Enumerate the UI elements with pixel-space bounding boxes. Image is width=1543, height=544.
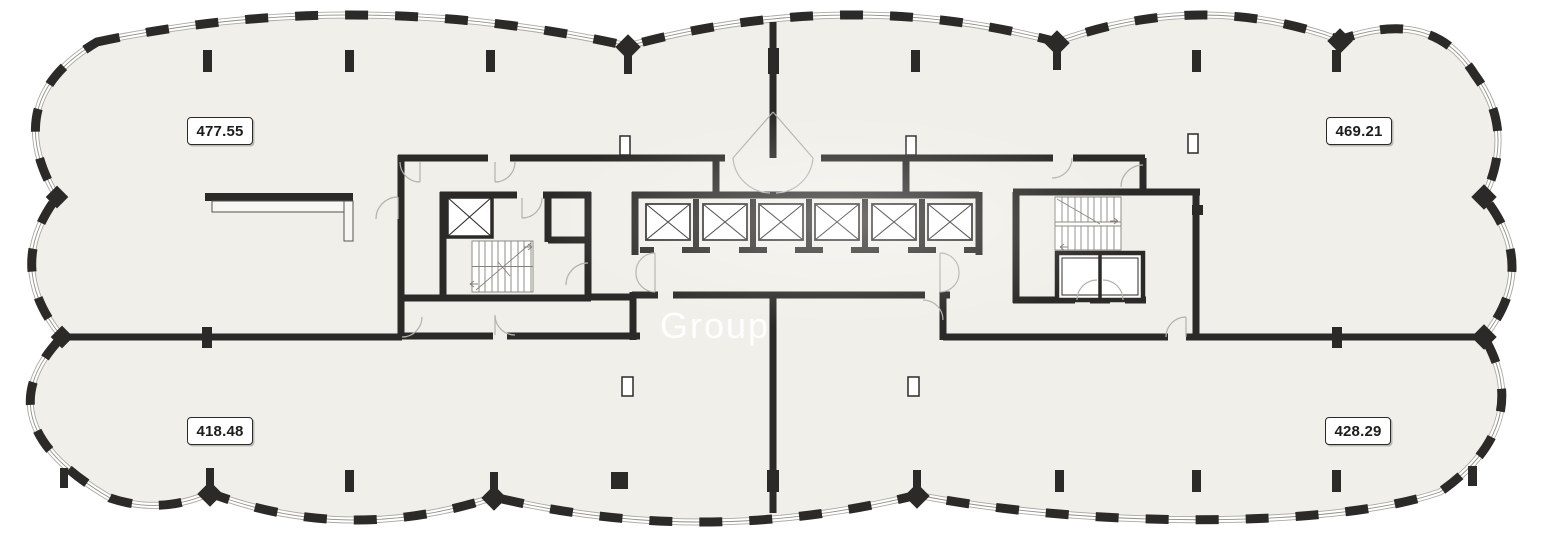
floor-plan-svg	[0, 0, 1543, 544]
area-label-bottom-right[interactable]: 428.29	[1325, 417, 1391, 445]
area-label-top-right[interactable]: 469.21	[1326, 117, 1392, 145]
stair-left	[470, 241, 533, 292]
floor-plan-canvas: Group 477.55 469.21 418.48 428.29	[0, 0, 1543, 544]
area-label-bottom-left[interactable]: 418.48	[187, 417, 253, 445]
wc-cabins	[1057, 253, 1143, 300]
wall-corner-cap	[1192, 205, 1203, 215]
area-label-top-left[interactable]: 477.55	[187, 117, 253, 145]
service-shaft	[447, 197, 492, 237]
stair-right	[1055, 197, 1121, 250]
